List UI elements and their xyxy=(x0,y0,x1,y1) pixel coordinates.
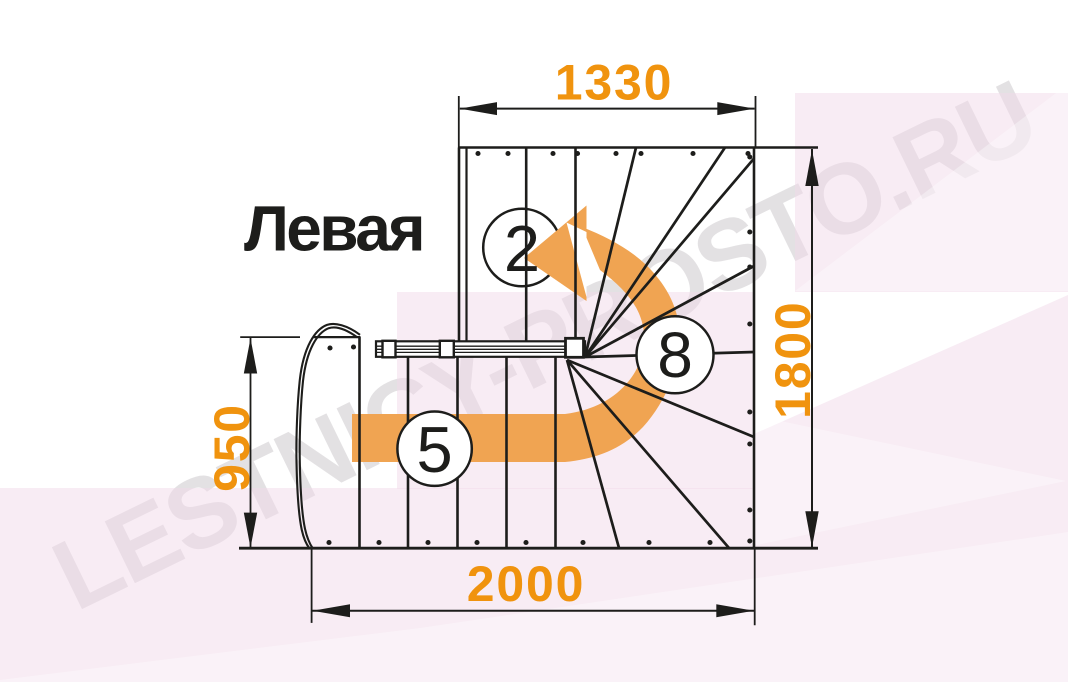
svg-text:1800: 1800 xyxy=(765,300,821,418)
svg-text:1330: 1330 xyxy=(555,55,673,111)
svg-text:5: 5 xyxy=(417,413,453,486)
svg-text:950: 950 xyxy=(204,403,260,492)
svg-text:2000: 2000 xyxy=(467,556,585,612)
svg-text:8: 8 xyxy=(657,319,693,391)
svg-text:Левая: Левая xyxy=(244,193,423,265)
svg-text:2: 2 xyxy=(504,212,540,285)
